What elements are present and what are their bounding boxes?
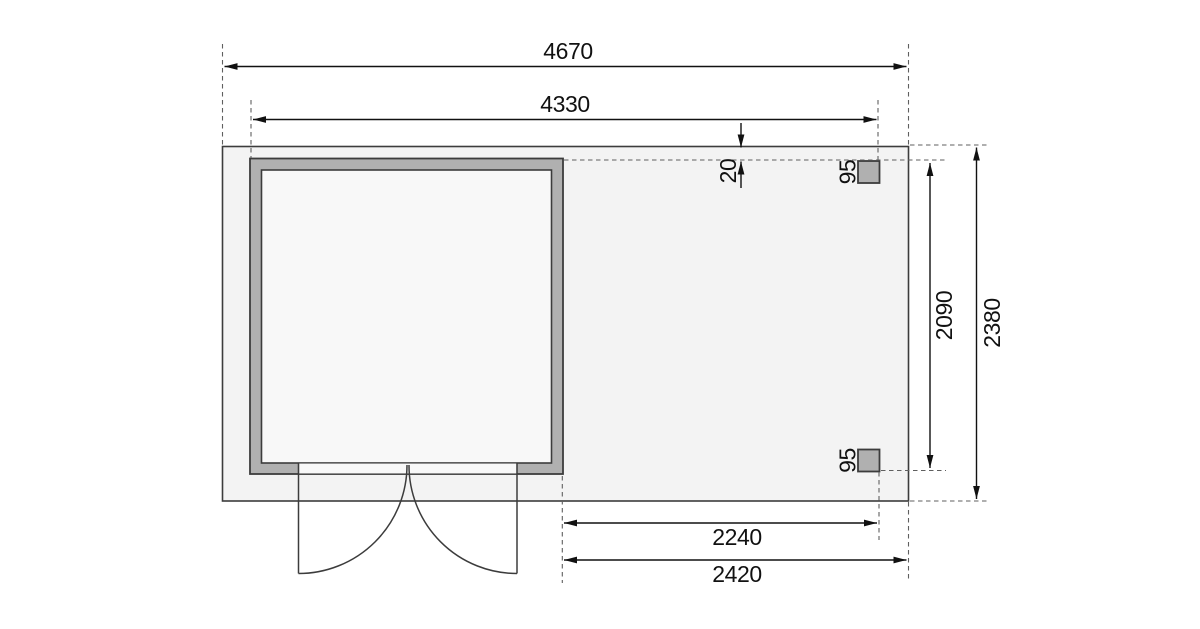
door-opening: [299, 463, 518, 474]
dim-overall-depth-label: 2380: [979, 298, 1005, 348]
floor-plan-page: 4670 4330 2090 2380 2240 2420 20 95 95: [0, 0, 1200, 629]
post-top: [858, 161, 880, 183]
dim-shed-width-label: 4330: [540, 91, 590, 117]
dim-post-bottom-label: 95: [835, 448, 861, 473]
floor-plan-drawing: 4670 4330 2090 2380 2240 2420 20 95 95: [0, 0, 1200, 629]
dim-roof-offset-label: 20: [715, 159, 741, 184]
shed-interior: [262, 170, 552, 463]
dim-annex-inner-width-label: 2240: [712, 524, 762, 550]
post-bottom: [858, 450, 880, 472]
dim-overall-width-label: 4670: [543, 38, 593, 64]
dim-annex-width-label: 2420: [712, 561, 762, 587]
dim-inner-depth-label: 2090: [931, 291, 957, 341]
dim-post-top-label: 95: [835, 160, 861, 185]
